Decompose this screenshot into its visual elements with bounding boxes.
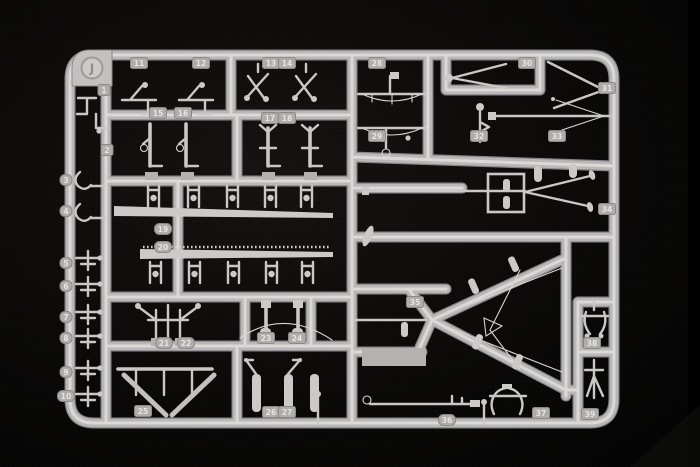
part-tag-21: 21 — [156, 338, 173, 349]
svg-text:27: 27 — [282, 408, 292, 417]
part-knob — [96, 128, 101, 133]
part-tag-6: 6 — [60, 281, 72, 292]
svg-text:3: 3 — [63, 176, 68, 185]
part-tag-5: 5 — [60, 258, 72, 269]
svg-text:14: 14 — [282, 59, 292, 68]
part-tag-8: 8 — [60, 333, 72, 344]
svg-text:18: 18 — [282, 114, 292, 123]
part-tag-19: 19 — [155, 224, 172, 235]
svg-text:28: 28 — [372, 59, 382, 68]
part-tag-33: 33 — [549, 131, 566, 142]
photo-frame: J 12345678910111213141516171819202122232… — [0, 0, 700, 467]
part-tag-38: 38 — [584, 338, 601, 349]
part-tag-26: 26 — [263, 407, 280, 418]
svg-text:25: 25 — [138, 407, 148, 416]
part-tag-11: 11 — [131, 58, 148, 69]
part-tag-25: 25 — [135, 406, 152, 417]
sprue-letter: J — [89, 62, 94, 76]
svg-text:33: 33 — [552, 132, 562, 141]
svg-text:13: 13 — [266, 59, 276, 68]
svg-text:32: 32 — [474, 132, 484, 141]
svg-text:29: 29 — [372, 132, 382, 141]
part-tag-10: 10 — [58, 391, 75, 402]
part-tag-1: 1 — [98, 85, 110, 96]
part-tag-9: 9 — [60, 367, 72, 378]
svg-text:16: 16 — [178, 109, 188, 118]
part-tag-32: 32 — [471, 131, 488, 142]
svg-text:35: 35 — [410, 298, 420, 307]
part-tag-34: 34 — [599, 204, 616, 215]
corner-letter-tab: J — [72, 50, 112, 86]
svg-text:20: 20 — [158, 243, 168, 252]
part-tag-18: 18 — [279, 113, 296, 124]
svg-text:11: 11 — [134, 59, 144, 68]
svg-text:31: 31 — [602, 84, 612, 93]
svg-text:8: 8 — [63, 334, 68, 343]
part-tag-14: 14 — [279, 58, 296, 69]
svg-text:15: 15 — [153, 109, 163, 118]
svg-text:30: 30 — [522, 59, 532, 68]
part-tag-20: 20 — [155, 242, 172, 253]
svg-text:19: 19 — [158, 225, 168, 234]
svg-text:10: 10 — [61, 392, 71, 401]
svg-text:6: 6 — [63, 282, 68, 291]
svg-text:7: 7 — [63, 313, 68, 322]
svg-text:39: 39 — [585, 410, 595, 419]
part-tag-24: 24 — [289, 333, 306, 344]
svg-text:37: 37 — [536, 409, 546, 418]
sprue-photo: J 12345678910111213141516171819202122232… — [0, 0, 700, 467]
svg-text:21: 21 — [159, 339, 169, 348]
svg-text:9: 9 — [63, 368, 68, 377]
part-tag-4: 4 — [60, 206, 72, 217]
svg-text:4: 4 — [63, 207, 68, 216]
part-tag-12: 12 — [193, 58, 210, 69]
part-tag-39: 39 — [582, 409, 599, 420]
svg-text:17: 17 — [265, 114, 275, 123]
svg-text:23: 23 — [261, 334, 271, 343]
part-tag-31: 31 — [599, 83, 616, 94]
part-tag-28: 28 — [369, 58, 386, 69]
part-tag-37: 37 — [533, 408, 550, 419]
part-tag-36: 36 — [439, 415, 456, 426]
svg-text:1: 1 — [101, 86, 106, 95]
part-tag-22: 22 — [178, 338, 195, 349]
svg-text:26: 26 — [266, 408, 276, 417]
svg-text:5: 5 — [63, 259, 68, 268]
part-tag-16: 16 — [175, 108, 192, 119]
svg-text:38: 38 — [587, 339, 597, 348]
right-edge-shadow — [688, 0, 700, 467]
part-tag-3: 3 — [60, 175, 72, 186]
part-tag-27: 27 — [279, 407, 296, 418]
svg-text:24: 24 — [292, 334, 302, 343]
part-tag-15: 15 — [150, 108, 167, 119]
svg-text:2: 2 — [104, 146, 109, 155]
part-tag-17: 17 — [262, 113, 279, 124]
svg-text:36: 36 — [442, 416, 452, 425]
part-tag-13: 13 — [263, 58, 280, 69]
part-tag-2: 2 — [101, 145, 113, 156]
svg-text:12: 12 — [196, 59, 206, 68]
part-tag-29: 29 — [369, 131, 386, 142]
svg-text:34: 34 — [602, 205, 612, 214]
part-tag-23: 23 — [258, 333, 275, 344]
part-tag-30: 30 — [519, 58, 536, 69]
svg-text:22: 22 — [181, 339, 191, 348]
part-tag-7: 7 — [60, 312, 72, 323]
part-tag-35: 35 — [407, 297, 424, 308]
